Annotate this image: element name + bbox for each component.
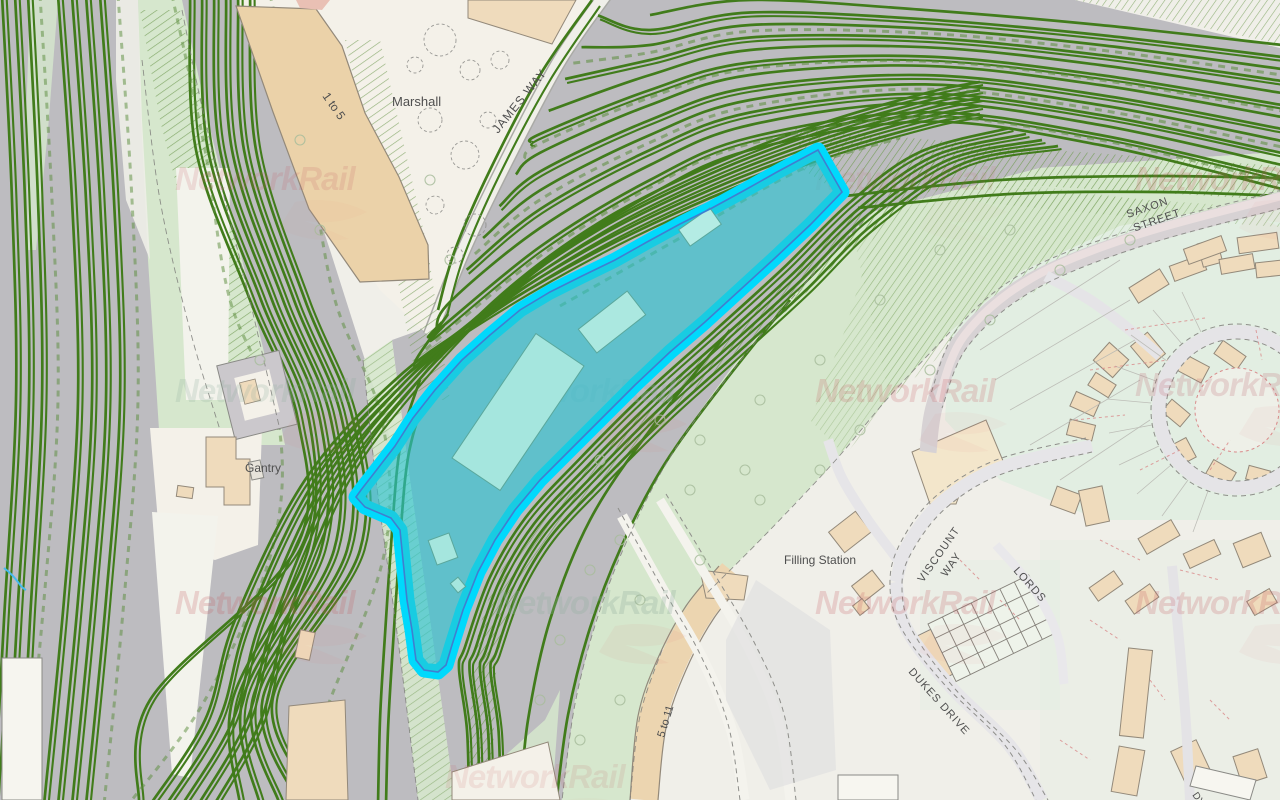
svg-text:NetworkRail: NetworkRail (445, 758, 627, 795)
svg-text:NetworkRail: NetworkRail (1135, 160, 1280, 197)
svg-text:NetworkRail: NetworkRail (815, 372, 997, 409)
svg-text:NetworkRail: NetworkRail (175, 584, 357, 621)
svg-text:NetworkRail: NetworkRail (815, 584, 997, 621)
svg-text:NetworkRail: NetworkRail (175, 160, 357, 197)
svg-text:Gantry: Gantry (245, 461, 281, 475)
svg-text:Marshall: Marshall (392, 94, 441, 109)
svg-text:Filling Station: Filling Station (784, 553, 856, 567)
svg-text:NetworkRail: NetworkRail (175, 372, 357, 409)
svg-text:NetworkRail: NetworkRail (1135, 366, 1280, 403)
svg-text:NetworkRail: NetworkRail (1135, 584, 1280, 621)
svg-text:NetworkRail: NetworkRail (495, 584, 677, 621)
